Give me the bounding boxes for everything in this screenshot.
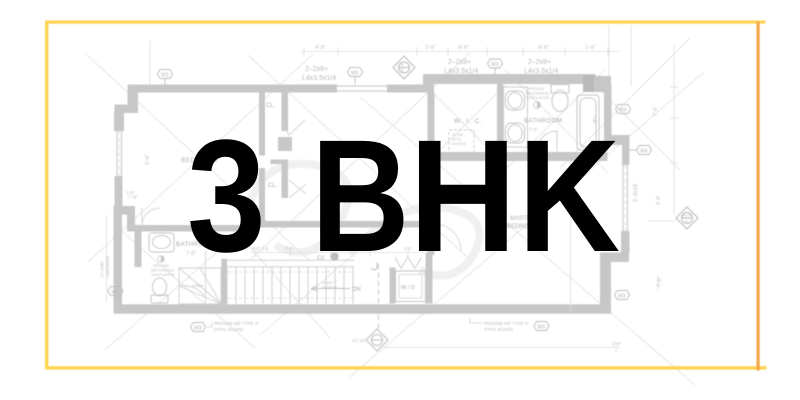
svg-text:W3: W3	[618, 293, 626, 299]
svg-text:4'-6": 4'-6"	[538, 45, 549, 51]
svg-text:9'-8": 9'-8"	[656, 195, 662, 205]
svg-text:3'-4": 3'-4"	[285, 246, 294, 251]
svg-text:2'-6": 2'-6"	[612, 341, 622, 347]
svg-text:7'-6": 7'-6"	[128, 195, 138, 201]
svg-text:W2: W2	[112, 289, 120, 295]
svg-text:L4x3.5x1/4: L4x3.5x1/4	[444, 68, 478, 75]
svg-text:L4x3.5x1/4: L4x3.5x1/4	[302, 75, 336, 82]
svg-text:W3: W3	[491, 62, 499, 68]
svg-text:MECHANICAL: MECHANICAL	[151, 269, 175, 273]
svg-text:W4: W4	[619, 107, 627, 113]
svg-text:4'-6": 4'-6"	[315, 45, 326, 51]
svg-text:L4x3.5x1/4: L4x3.5x1/4	[105, 255, 110, 278]
svg-text:W / D: W / D	[401, 285, 415, 291]
svg-text:7'-6": 7'-6"	[653, 106, 659, 116]
svg-text:B: B	[401, 68, 404, 73]
svg-text:7'-6": 7'-6"	[657, 277, 663, 287]
svg-text:42'-10": 42'-10"	[352, 338, 366, 343]
svg-text:W3: W3	[538, 324, 546, 330]
svg-text:PROVIDE: PROVIDE	[153, 264, 170, 268]
svg-text:36 HIGH: 36 HIGH	[322, 286, 337, 290]
svg-text:W4: W4	[640, 148, 648, 154]
svg-text:4'-6": 4'-6"	[458, 45, 469, 51]
svg-text:MECHANICAL: MECHANICAL	[526, 92, 550, 96]
svg-text:2–2x8+: 2–2x8+	[448, 59, 471, 66]
svg-text:E: E	[401, 62, 404, 67]
svg-text:PROVIDE 5/8" TYPE 'X': PROVIDE 5/8" TYPE 'X'	[484, 321, 529, 326]
svg-text:17–2x8+: 17–2x8+	[100, 260, 105, 278]
svg-text:GYPS. BOARD: GYPS. BOARD	[484, 327, 513, 332]
svg-text:2'-6": 2'-6"	[425, 45, 436, 51]
svg-text:1'-6": 1'-6"	[126, 190, 135, 195]
svg-text:DN: DN	[352, 287, 361, 293]
svg-text:GYPS. BOARD: GYPS. BOARD	[214, 327, 243, 332]
svg-text:VENTILATION: VENTILATION	[151, 273, 175, 277]
svg-text:W3: W3	[351, 70, 359, 76]
svg-text:A-10: A-10	[683, 214, 691, 218]
svg-text:CL.: CL.	[266, 103, 276, 109]
svg-text:2–2x8+: 2–2x8+	[528, 59, 551, 66]
svg-text:L4x3.5x1/4: L4x3.5x1/4	[524, 68, 558, 75]
svg-text:CL.: CL.	[268, 183, 278, 189]
svg-text:A: A	[685, 220, 688, 224]
svg-text:W3: W3	[194, 325, 202, 331]
svg-text:PROVIDE: PROVIDE	[528, 87, 545, 91]
svg-text:VENTILATION: VENTILATION	[526, 96, 550, 100]
svg-text:1'-6": 1'-6"	[585, 45, 596, 51]
svg-text:2–2x10: 2–2x10	[633, 184, 639, 202]
svg-text:PROVIDE 5/8" TYPE 'X': PROVIDE 5/8" TYPE 'X'	[214, 321, 259, 326]
svg-text:2–2x8+: 2–2x8+	[305, 66, 328, 73]
svg-text:5'-6": 5'-6"	[145, 154, 151, 165]
svg-text:W3: W3	[161, 72, 169, 78]
